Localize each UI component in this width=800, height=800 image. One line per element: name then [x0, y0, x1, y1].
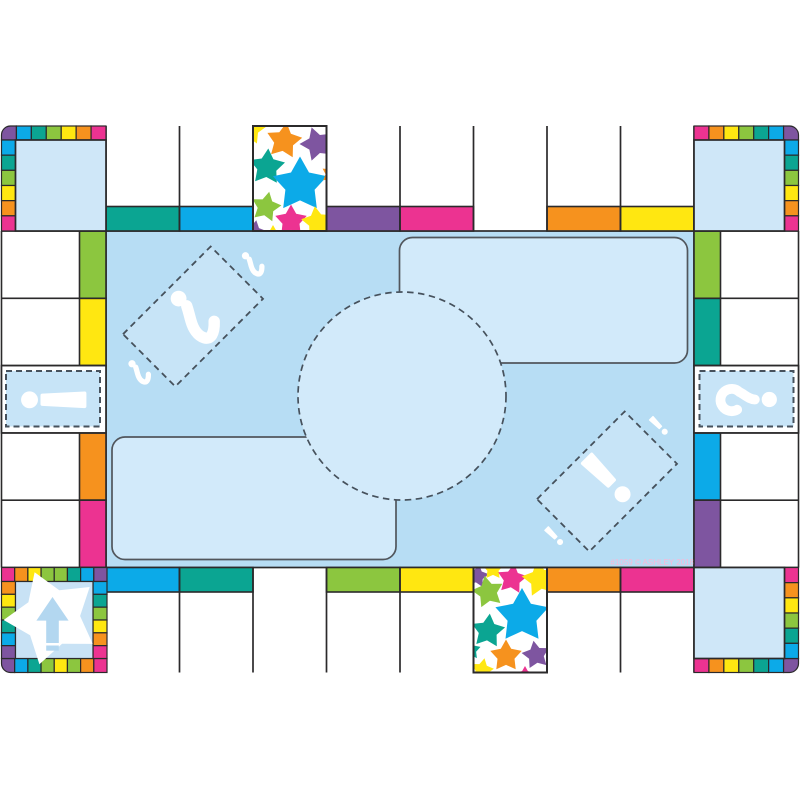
svg-text:#1059 © ASHLEY 2018: #1059 © ASHLEY 2018 [610, 558, 694, 567]
